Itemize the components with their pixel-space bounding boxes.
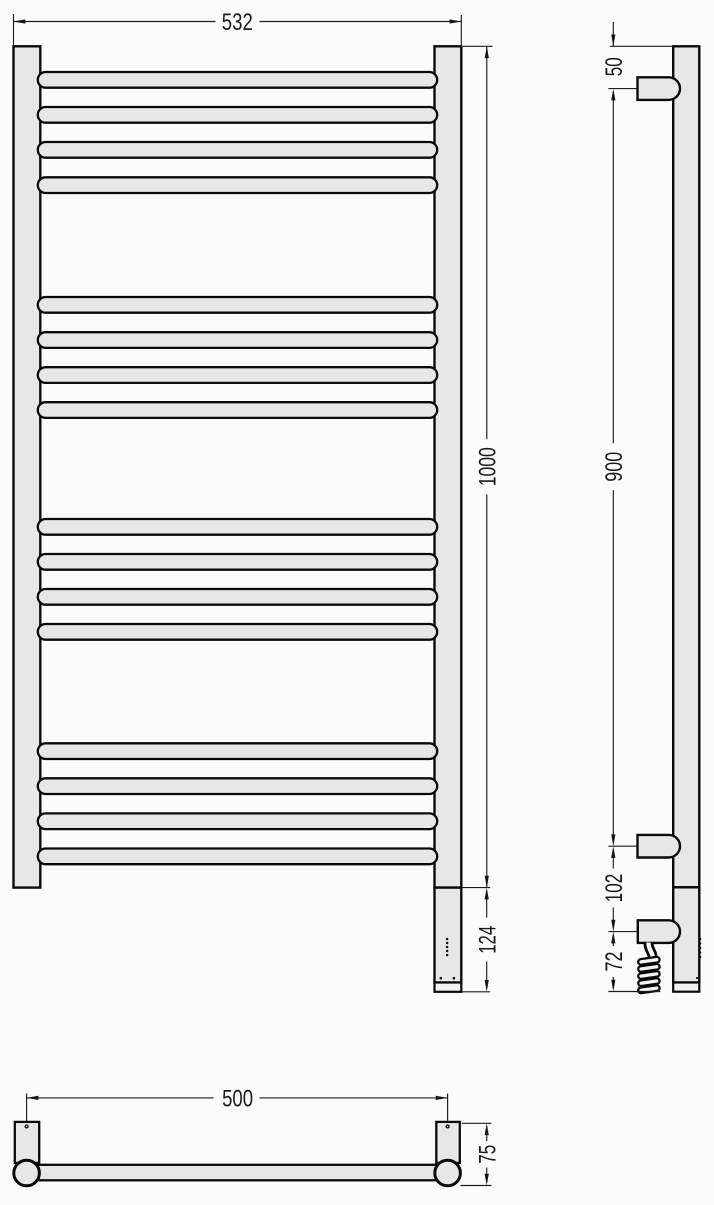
svg-text:102: 102 (601, 874, 628, 903)
svg-text:50: 50 (601, 57, 628, 76)
svg-text:532: 532 (222, 9, 253, 36)
svg-text:900: 900 (601, 452, 628, 482)
svg-text:500: 500 (222, 1086, 253, 1113)
svg-text:72: 72 (601, 952, 628, 972)
svg-text:1000: 1000 (474, 447, 501, 486)
svg-text:75: 75 (474, 1145, 501, 1164)
svg-text:124: 124 (474, 926, 501, 954)
